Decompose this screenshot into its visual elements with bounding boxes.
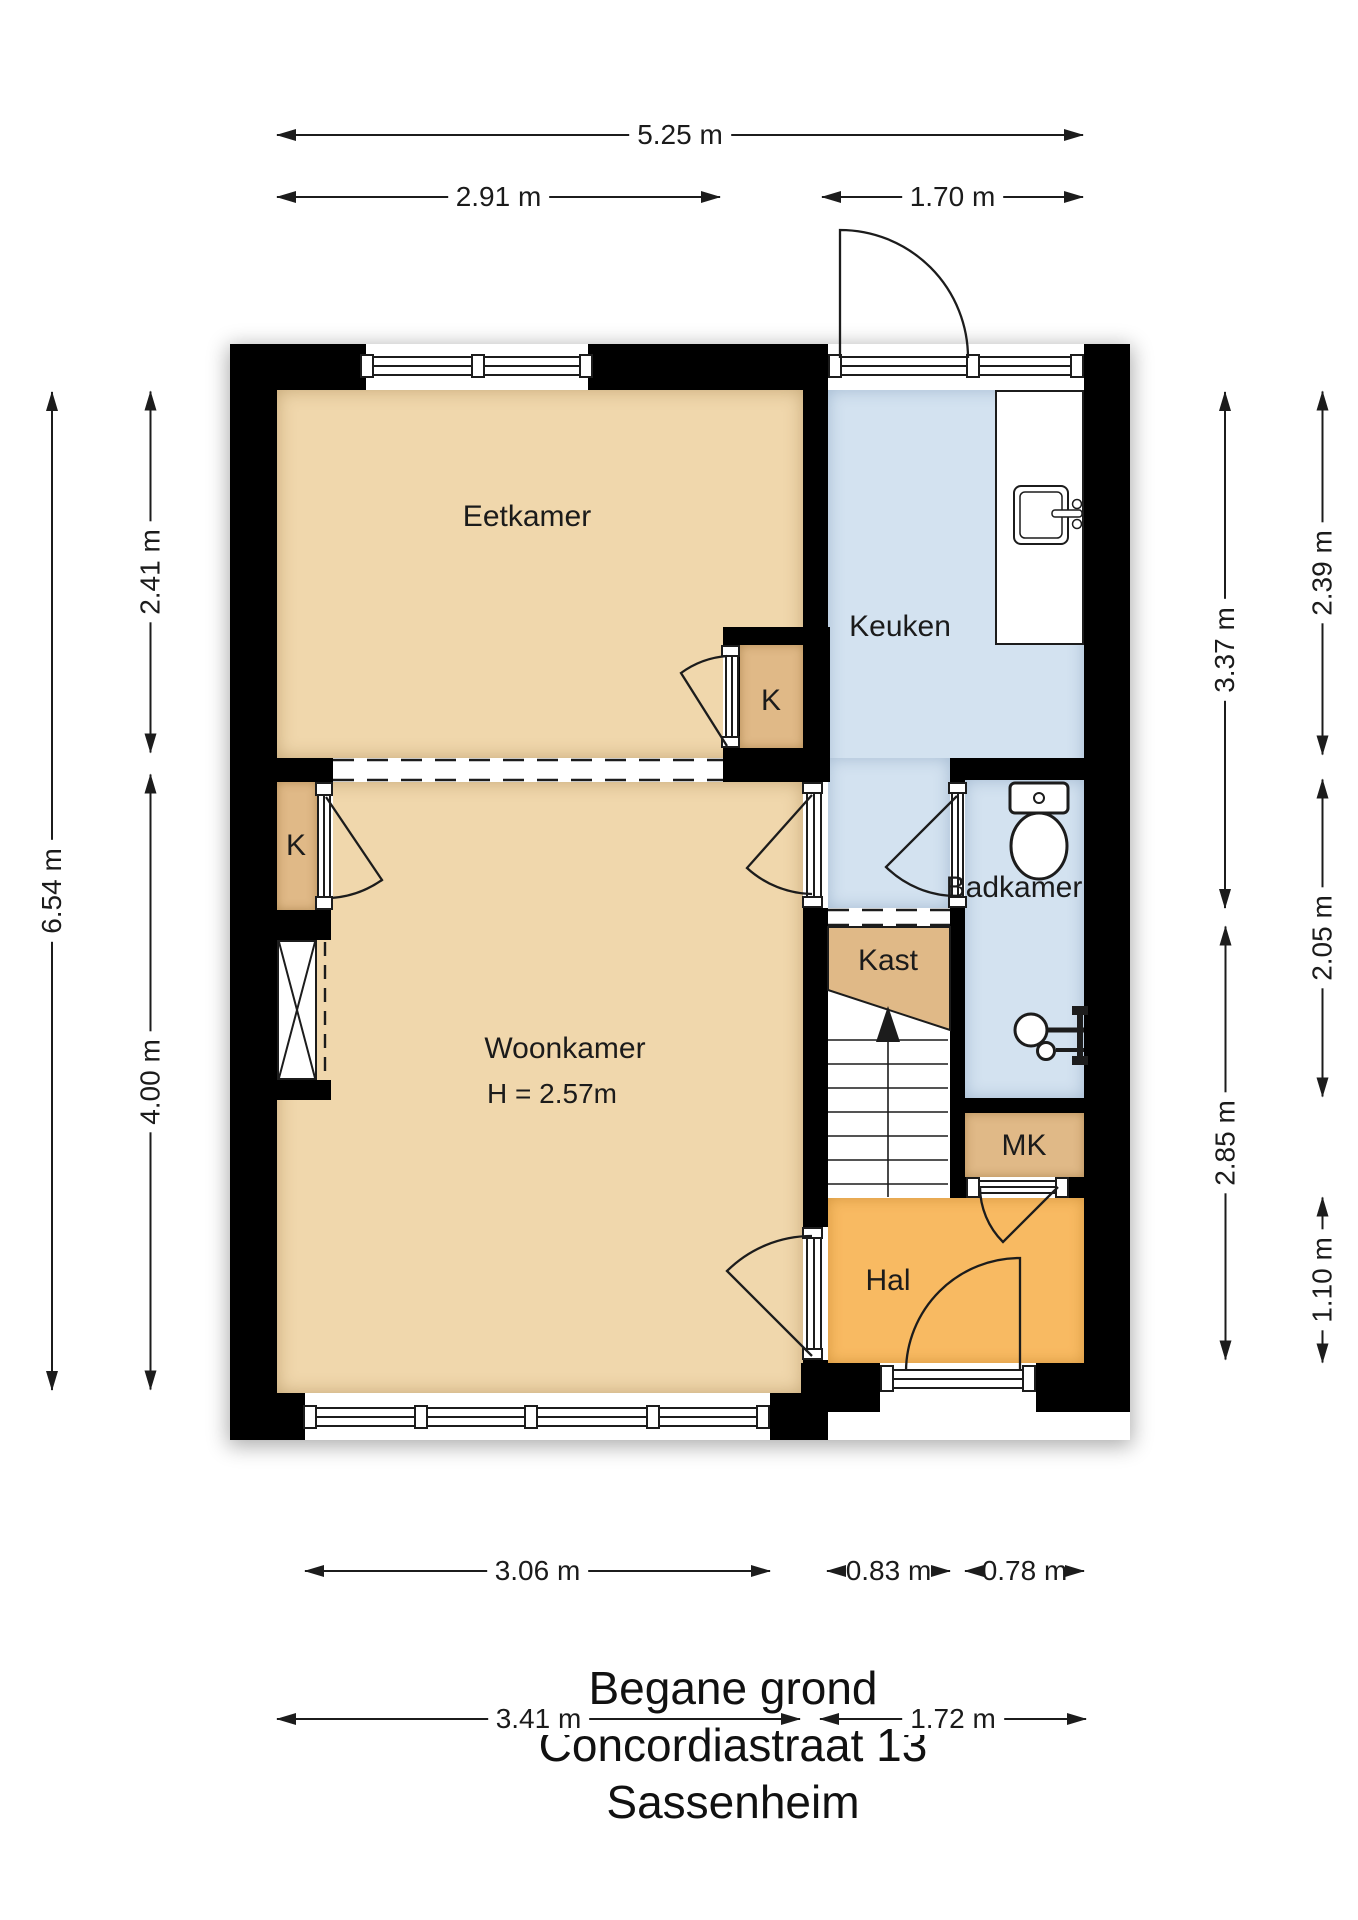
dim-bottom-mid-right: 0.78 m <box>965 1570 1084 1572</box>
wall-badkamer-bottom <box>950 1098 1084 1113</box>
window-jamb <box>579 354 593 378</box>
woonkamer-hal-door <box>806 1237 822 1350</box>
wall-stub-dashed-left <box>277 758 333 782</box>
dim-label: 3.41 m <box>488 1703 590 1735</box>
door-jamb <box>315 782 333 796</box>
closet-left-door <box>317 795 331 898</box>
room-badkamer <box>965 780 1084 1098</box>
dim-left-total: 6.54 m <box>51 392 53 1390</box>
plan-title-block: Begane grond Concordiastraat 13 Sassenhe… <box>383 1660 1083 1831</box>
dim-right-outer-middle: 2.05 m <box>1321 780 1323 1097</box>
label-woonkamer-height: H = 2.57m <box>487 1078 617 1110</box>
dim-label: 3.37 m <box>1209 599 1241 701</box>
dim-label: 6.54 m <box>36 840 68 942</box>
dim-label: 1.10 m <box>1306 1229 1338 1331</box>
dim-label: 0.83 m <box>838 1555 940 1587</box>
dim-label: 2.91 m <box>448 181 550 213</box>
dim-label: 1.72 m <box>902 1703 1004 1735</box>
room-keuken-passage <box>828 758 950 908</box>
dim-right-inner-lower: 2.85 m <box>1224 927 1226 1360</box>
kitchen-counter <box>995 390 1084 645</box>
door-jamb <box>880 1365 894 1392</box>
backdoor-swing <box>840 230 968 358</box>
dim-bottom-window: 3.06 m <box>305 1570 770 1572</box>
window-jamb <box>471 354 485 378</box>
dim-label: 2.41 m <box>134 521 166 623</box>
dim-top-left-section: 2.91 m <box>277 196 720 198</box>
shaft-box <box>277 940 317 1080</box>
door-jamb <box>828 354 842 378</box>
label-badkamer: Badkamer <box>946 871 1083 905</box>
door-jamb <box>721 645 740 657</box>
wall-stub-below-closet-left <box>277 910 331 940</box>
floorplan-page: Eetkamer Keuken K K Woonkamer H = 2.57m … <box>0 0 1358 1920</box>
backdoor-threshold <box>841 356 968 376</box>
wall-stub-below-shaft <box>277 1080 331 1100</box>
door-jamb <box>802 1348 823 1360</box>
label-kast: Kast <box>858 944 918 978</box>
dim-label: 3.06 m <box>487 1555 589 1587</box>
dim-label: 5.25 m <box>629 119 731 151</box>
dim-left-lower: 4.00 m <box>149 775 151 1390</box>
plan-title-city: Sassenheim <box>383 1774 1083 1831</box>
wall-left <box>230 344 277 1440</box>
window-jamb <box>1070 354 1084 378</box>
wall-right <box>1084 344 1130 1412</box>
wall-eetkamer-keuken <box>803 390 828 627</box>
dim-top-right-section: 1.70 m <box>822 196 1083 198</box>
door-jamb <box>315 896 333 910</box>
door-jamb <box>1055 1177 1069 1198</box>
label-closet-top: K <box>761 684 781 718</box>
label-woonkamer: Woonkamer <box>484 1032 645 1066</box>
meterkast-door <box>980 1180 1055 1194</box>
dim-label: 4.00 m <box>134 1031 166 1133</box>
dim-top-total: 5.25 m <box>277 134 1083 136</box>
window-jamb <box>414 1405 428 1429</box>
frontdoor-threshold <box>893 1369 1023 1389</box>
wall-badkamer-top <box>952 758 1084 780</box>
label-closet-left: K <box>286 829 306 863</box>
dim-label: 0.78 m <box>974 1555 1076 1587</box>
dim-right-outer-lower: 1.10 m <box>1321 1198 1323 1363</box>
dim-label: 2.85 m <box>1209 1092 1241 1194</box>
label-keuken: Keuken <box>849 610 951 644</box>
window-jamb <box>524 1405 538 1429</box>
door-jamb <box>802 1227 823 1239</box>
woonkamer-keuken-door <box>806 792 822 898</box>
dim-bottom-mid-left: 0.83 m <box>827 1570 950 1572</box>
dim-label: 2.05 m <box>1306 887 1338 989</box>
door-jamb <box>948 782 967 794</box>
door-jamb <box>802 896 823 908</box>
label-hal: Hal <box>865 1264 910 1298</box>
door-jamb <box>802 782 823 794</box>
window-top-keuken-glazing <box>980 356 1072 376</box>
dim-right-outer-upper: 2.39 m <box>1321 392 1323 755</box>
open-connection-eetkamer-woonkamer <box>333 758 723 782</box>
door-jamb <box>966 1177 980 1198</box>
dim-label: 1.70 m <box>902 181 1004 213</box>
dim-right-inner-upper: 3.37 m <box>1224 392 1226 908</box>
window-jamb <box>303 1405 317 1429</box>
window-jamb <box>756 1405 770 1429</box>
window-jamb <box>360 354 374 378</box>
label-meterkast: MK <box>1002 1129 1047 1163</box>
window-jamb <box>646 1405 660 1429</box>
door-jamb <box>721 736 740 748</box>
closet-top-door <box>725 655 739 738</box>
dim-label: 2.39 m <box>1306 522 1338 624</box>
label-eetkamer: Eetkamer <box>463 500 591 534</box>
door-jamb <box>1022 1365 1036 1392</box>
dim-left-upper: 2.41 m <box>149 392 151 753</box>
door-jamb <box>966 354 980 378</box>
